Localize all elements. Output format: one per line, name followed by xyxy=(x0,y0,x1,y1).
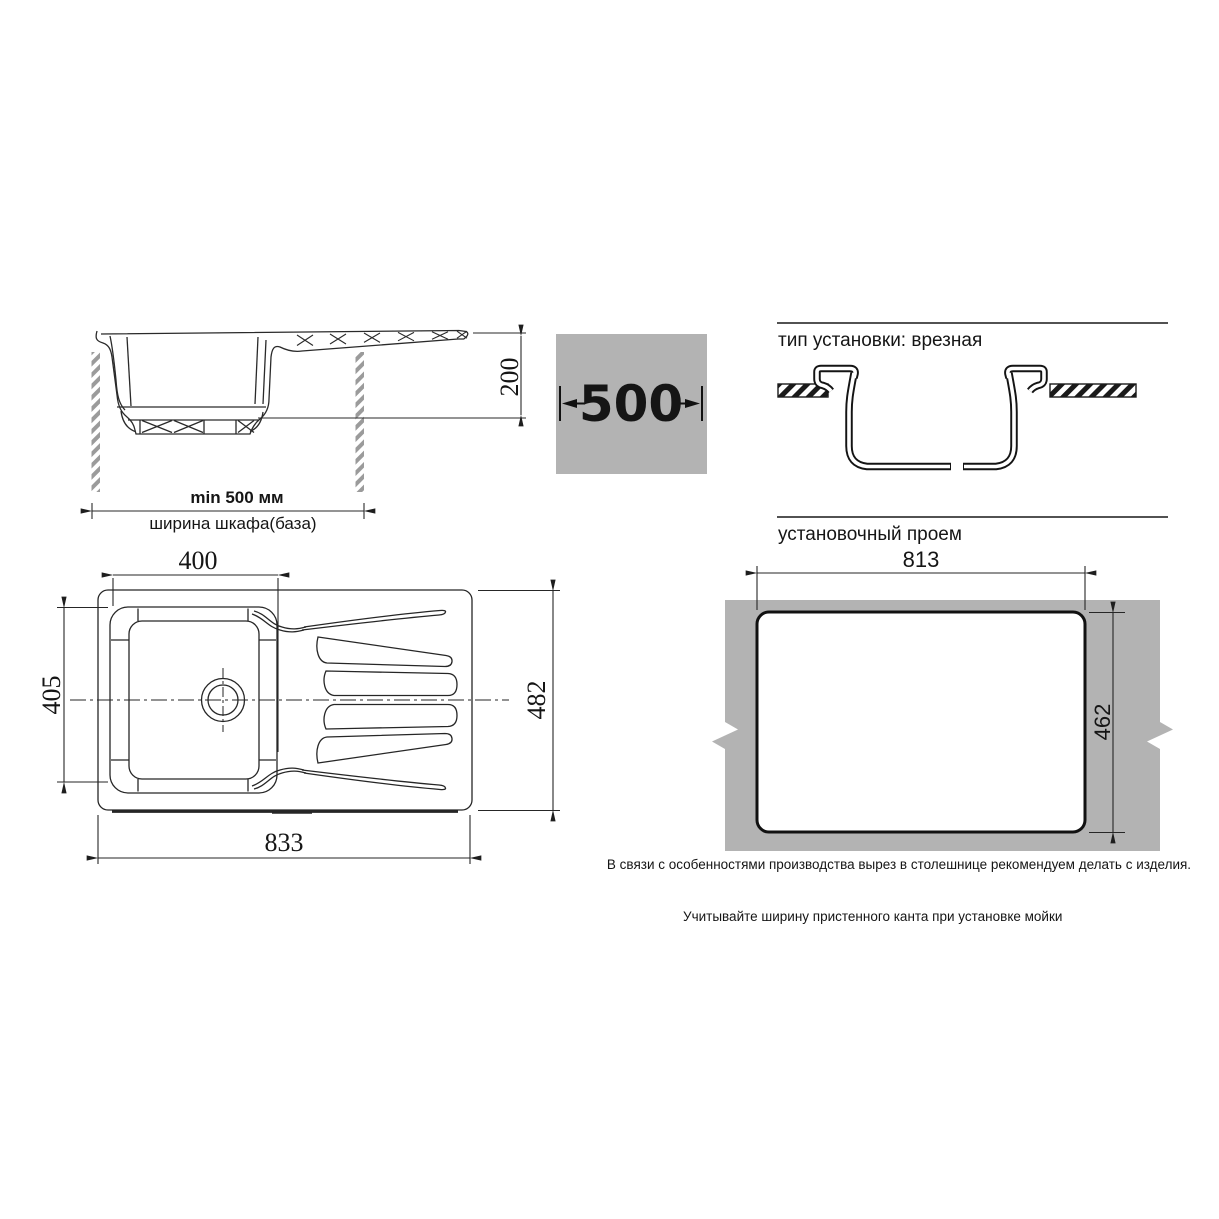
install-type-panel: тип установки: врезная xyxy=(777,323,1168,467)
cutout-opening xyxy=(757,612,1085,832)
install-opening-title: установочный проем xyxy=(778,524,962,545)
badge-value: 500 xyxy=(579,375,683,433)
rim-section-right xyxy=(963,369,1044,467)
cutout-width-dim-label: 813 xyxy=(903,547,940,572)
top-view-drawing xyxy=(57,575,560,864)
countertop-right-hatch xyxy=(1050,384,1136,397)
technical-drawing: 200 min 500 мм ширина шкафа(база) 500 ти… xyxy=(0,0,1219,1219)
bowl-width-dimension xyxy=(113,575,278,752)
bowl-width-dim-label: 400 xyxy=(179,546,218,575)
side-view-drawing xyxy=(92,331,527,520)
cabinet-wall-right-hatch xyxy=(356,352,365,492)
cabinet-wall-left-hatch xyxy=(92,352,101,492)
bowl-depth-dim-label: 405 xyxy=(37,676,66,715)
cutout-depth-dim-label: 462 xyxy=(1090,704,1115,741)
install-type-title: тип установки: врезная xyxy=(778,330,982,351)
width-500-badge: 500 xyxy=(556,334,707,474)
production-note: В связи с особенностями производства выр… xyxy=(607,857,1191,872)
min-width-label: min 500 мм xyxy=(190,488,283,507)
overall-length-dim-label: 833 xyxy=(265,828,304,857)
install-opening-panel: установочный проем 813 462 В связи с осо… xyxy=(607,517,1191,924)
sink-datasheet: 200 min 500 мм ширина шкафа(база) 500 ти… xyxy=(0,0,1219,1219)
rim-section-left xyxy=(817,369,951,467)
cabinet-width-label: ширина шкафа(база) xyxy=(149,514,316,533)
height-dimension-200 xyxy=(258,333,526,418)
overall-width-dim-label: 482 xyxy=(522,681,551,720)
height-dim-label: 200 xyxy=(495,358,524,397)
install-note: Учитывайте ширину пристенного канта при … xyxy=(683,909,1062,924)
